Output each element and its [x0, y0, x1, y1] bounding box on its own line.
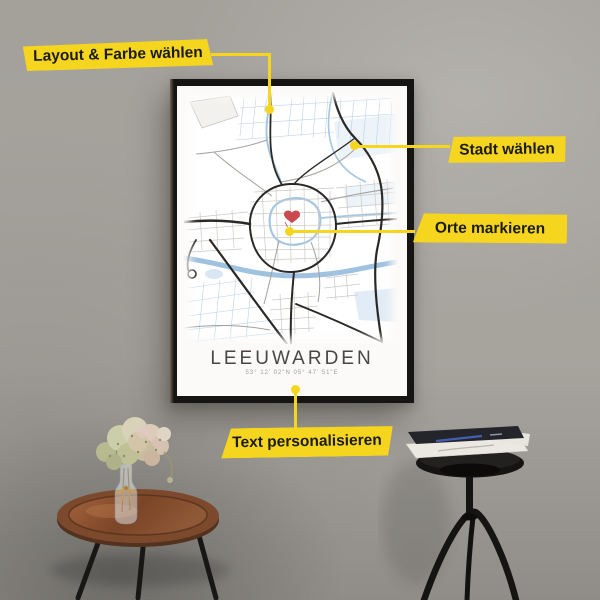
- poster-coordinates: 53° 12' 02"N 05° 47' 51"E: [177, 370, 407, 376]
- map-point-text: [291, 385, 300, 394]
- tag-text-label: Text personalisieren: [232, 432, 382, 453]
- map-poster: LEEUWARDEN 53° 12' 02"N 05° 47' 51"E: [177, 86, 407, 396]
- connector-text: [294, 390, 297, 429]
- map-point-places: [285, 227, 294, 236]
- side-table: [40, 400, 260, 600]
- city-map-graphic: [184, 92, 397, 344]
- glass-vase: [115, 464, 137, 524]
- tag-places-label: Orte markieren: [435, 219, 545, 238]
- tag-layout-farbe-waehlen[interactable]: Layout & Farbe wählen: [23, 39, 214, 71]
- map-point-layout: [265, 105, 274, 114]
- product-scene: LEEUWARDEN 53° 12' 02"N 05° 47' 51"E Lay…: [0, 0, 600, 600]
- poster-title: LEEUWARDEN: [177, 348, 407, 370]
- tag-stadt-waehlen[interactable]: Stadt wählen: [448, 135, 566, 164]
- tag-text-personalisieren[interactable]: Text personalisieren: [221, 426, 393, 459]
- table-top: [57, 489, 219, 547]
- dried-hydrangea: [96, 417, 173, 483]
- connector-city: [357, 145, 450, 148]
- tag-city-label: Stadt wählen: [459, 140, 555, 159]
- map-point-city: [350, 141, 359, 150]
- tag-layout-label: Layout & Farbe wählen: [33, 44, 203, 66]
- stool: [378, 414, 588, 600]
- tag-orte-markieren[interactable]: Orte markieren: [413, 213, 567, 243]
- poster-frame: LEEUWARDEN 53° 12' 02"N 05° 47' 51"E: [170, 79, 414, 403]
- connector-layout-vertical: [268, 53, 271, 111]
- connector-places: [292, 230, 415, 233]
- map-svg: [184, 92, 397, 344]
- connector-layout-horizontal: [211, 53, 271, 56]
- book-stack: [406, 426, 530, 458]
